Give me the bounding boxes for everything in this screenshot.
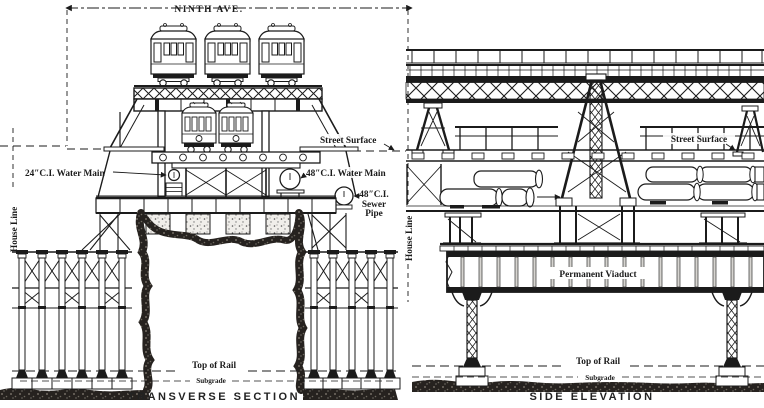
ninth-ave-construction-drawing: NINTH AVE. (0, 0, 764, 408)
label-subgrade-right: Subgrade (585, 374, 615, 382)
label-top-of-rail-left: Top of Rail (192, 361, 237, 371)
engineering-drawing-page: NINTH AVE. (0, 0, 764, 408)
label-water-main-24: 24″C.I. Water Main (25, 169, 106, 179)
label-subgrade-left: Subgrade (196, 377, 226, 385)
label-sewer-48-line1: 48″C.I. (359, 190, 388, 200)
caption-side-elevation: SIDE ELEVATION (529, 391, 654, 403)
caption-transverse-section: TRANSVERSE SECTION (128, 391, 300, 403)
label-sewer-48-line3: Pipe (365, 209, 383, 219)
label-permanent-viaduct: Permanent Viaduct (559, 270, 637, 280)
label-house-line-right: House Line (405, 216, 415, 261)
label-ninth-ave: NINTH AVE. (174, 5, 243, 15)
label-street-surface-right: Street Surface (671, 135, 727, 145)
elevated-railway-cars (151, 24, 304, 87)
label-street-surface-left: Street Surface (320, 136, 376, 146)
temporary-lattice-girder (406, 79, 764, 103)
label-house-line-left: House Line (10, 207, 20, 252)
label-water-main-48: 48″C.I. Water Main (306, 169, 387, 179)
label-top-of-rail-right: Top of Rail (576, 357, 621, 367)
